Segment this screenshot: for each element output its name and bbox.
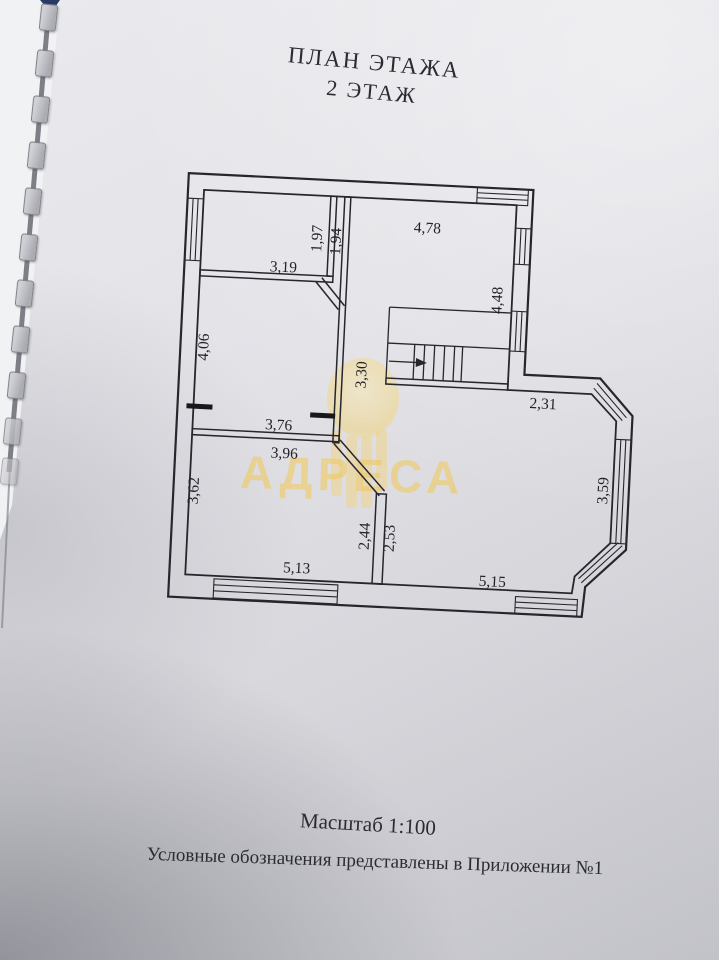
- dimension-label: 3,76: [265, 416, 293, 434]
- binding-tab: [31, 95, 51, 124]
- dimension-label: 2,44: [356, 522, 374, 550]
- dimension-label: 5,13: [283, 559, 311, 577]
- door-openings: [186, 403, 335, 418]
- binding-tab: [19, 233, 39, 262]
- binding-tab: [15, 279, 35, 308]
- photographed-document-page: ПЛАН ЭТАЖА 2 ЭТАЖ АДРЕСА: [0, 0, 719, 960]
- dimension-label: 4,48: [488, 286, 506, 314]
- dimension-label: 1,97: [308, 224, 326, 252]
- staircase: [386, 307, 511, 384]
- scale-note: Масштаб 1:100: [238, 805, 499, 844]
- binding-tab: [7, 371, 27, 400]
- dimension-label: 4,78: [413, 219, 441, 237]
- document-title: ПЛАН ЭТАЖА 2 ЭТАЖ: [201, 35, 545, 121]
- binding-edge: [0, 0, 80, 660]
- binding-tab: [27, 141, 47, 170]
- dimension-labels: 3,19 1,97 1,94 4,78 4,48 4,06 3,30 3,76 …: [181, 209, 624, 596]
- dimension-label: 3,19: [269, 258, 297, 276]
- legend-note: Условные обозначения представлены в Прил…: [105, 843, 645, 882]
- dimension-label: 3,59: [594, 477, 612, 505]
- binding-tab: [23, 187, 43, 216]
- binding-tab: [3, 417, 23, 446]
- stair-direction-arrow-icon: [389, 357, 427, 368]
- dimension-label: 1,94: [327, 227, 345, 255]
- dimension-label: 3,62: [185, 477, 203, 505]
- dimension-label: 2,31: [529, 395, 557, 413]
- exterior-walls: [168, 173, 643, 619]
- interior-walls: [185, 190, 516, 590]
- dimension-label: 2,53: [381, 524, 399, 552]
- binding-tab: [35, 49, 55, 78]
- dimension-label: 3,30: [353, 361, 371, 389]
- binding-tab: [0, 457, 19, 486]
- binding-tab: [39, 3, 59, 32]
- floor-plan-drawing: 3,19 1,97 1,94 4,78 4,48 4,06 3,30 3,76 …: [165, 170, 651, 632]
- dimension-label: 5,15: [478, 573, 506, 591]
- dimension-label: 4,06: [195, 333, 213, 361]
- binding-tab: [11, 325, 31, 354]
- windows: [168, 173, 643, 619]
- dimension-label: 3,96: [270, 444, 298, 462]
